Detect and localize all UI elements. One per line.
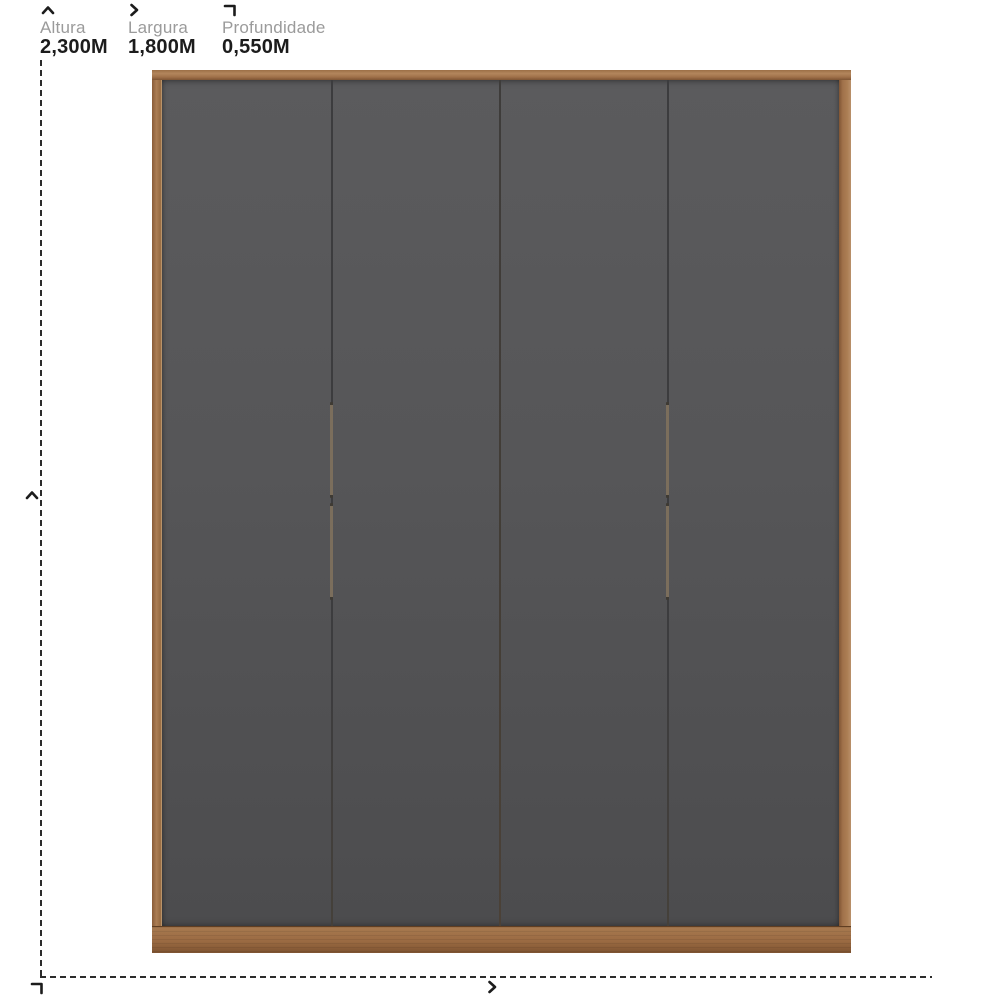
dimension-label: Largura: [128, 18, 188, 37]
dimension-profundidade: Profundidade 0,550M: [222, 2, 326, 58]
height-dimension-line: [40, 60, 42, 977]
door-seam: [499, 80, 501, 926]
door-handle: [330, 503, 333, 600]
corner-depth-icon: [222, 2, 238, 18]
dimension-label: Profundidade: [222, 18, 326, 37]
dimension-value: 0,550M: [222, 37, 290, 58]
dimension-value: 1,800M: [128, 37, 196, 58]
wardrobe-frame-right: [839, 80, 851, 926]
wardrobe-frame-top: [152, 70, 851, 80]
product-dimension-diagram: Altura 2,300M Largura 1,800M Profundidad…: [0, 0, 1000, 1000]
dimension-largura: Largura 1,800M: [128, 2, 196, 58]
door-handle: [666, 402, 669, 498]
wardrobe-frame-left: [152, 80, 162, 926]
dimension-label: Altura: [40, 18, 86, 37]
chevron-up-icon: [40, 2, 56, 18]
width-dimension-line: [40, 976, 932, 978]
chevron-right-icon: [128, 2, 140, 18]
dimension-value: 2,300M: [40, 37, 108, 58]
height-arrow-icon: [24, 489, 40, 505]
width-arrow-icon: [486, 979, 502, 995]
door-handle: [666, 503, 669, 600]
door-handle: [330, 402, 333, 498]
wardrobe-base: [152, 926, 851, 953]
depth-corner-icon: [29, 981, 45, 997]
wardrobe-image: [152, 70, 851, 953]
dimension-altura: Altura 2,300M: [40, 2, 108, 58]
